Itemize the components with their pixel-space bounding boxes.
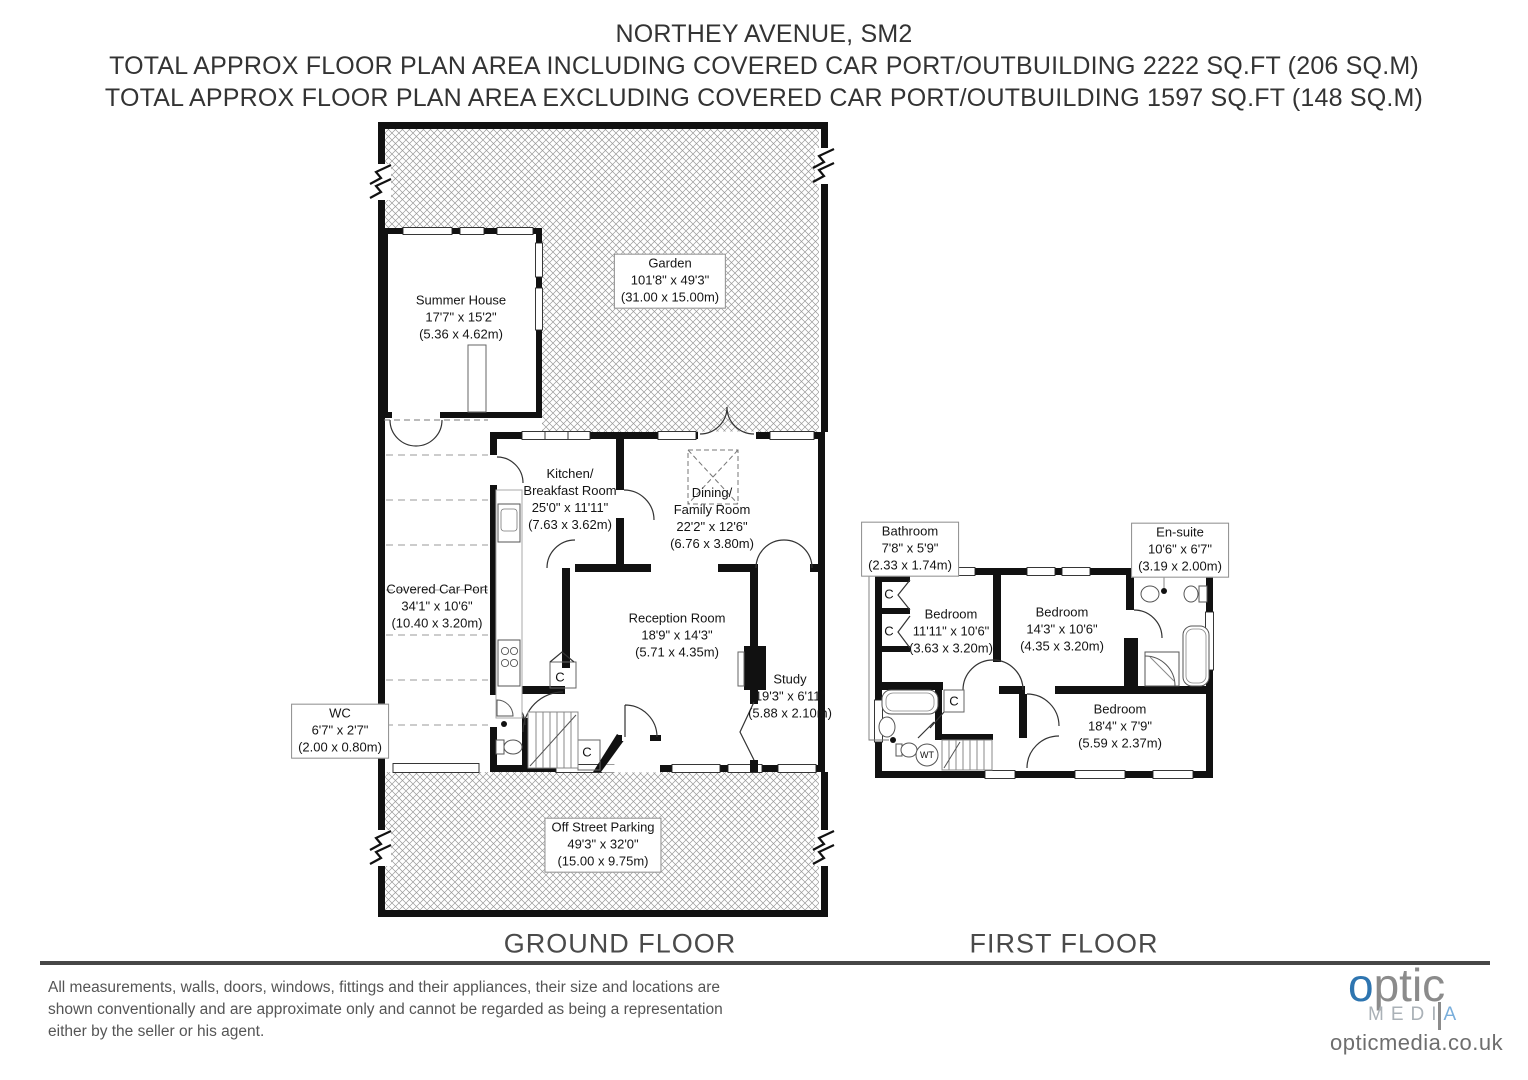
car-port-screen	[393, 764, 479, 773]
summer-house-door	[390, 420, 442, 446]
closet-symbol-ground-2: C	[582, 745, 591, 760]
kitchen-fixtures	[496, 490, 522, 718]
logo-media-line: MEDIA	[1368, 1004, 1486, 1026]
stairs-first	[942, 740, 992, 770]
first-floor-title: FIRST FLOOR	[969, 929, 1158, 960]
room-label-dining: Dining/ Family Room 22'2" x 12'6" (6.76 …	[670, 485, 754, 553]
room-label-reception: Reception Room 18'9" x 14'3" (5.71 x 4.3…	[629, 611, 726, 662]
room-label-bathroom: Bathroom 7'8" x 5'9" (2.33 x 1.74m)	[861, 522, 959, 577]
bathroom-dot	[890, 737, 896, 743]
closet-symbol-ff-3: C	[949, 694, 958, 709]
closet-symbol-ff-2: C	[884, 624, 893, 639]
front-door-gap	[622, 735, 650, 741]
room-label-kitchen: Kitchen/ Breakfast Room 25'0" x 11'11" (…	[523, 466, 616, 534]
optic-media-logo: optic MEDIA opticmedia.co.uk	[1326, 962, 1486, 1056]
logo-website: opticmedia.co.uk	[1330, 1030, 1486, 1056]
room-label-garden: Garden 101'8" x 49'3" (31.00 x 15.00m)	[614, 254, 726, 309]
closet-symbol-ff-1: C	[884, 587, 893, 602]
door-hinge-dot	[501, 721, 507, 727]
fireplace-hearth	[738, 652, 744, 686]
room-label-ensuite: En-suite 10'6" x 6'7" (3.19 x 2.00m)	[1131, 523, 1229, 578]
logo-wordmark: optic	[1348, 962, 1486, 1008]
ensuite-dot	[1161, 588, 1167, 594]
room-label-bedroom-3: Bedroom 18'4" x 7'9" (5.59 x 2.37m)	[1078, 702, 1162, 753]
room-label-bedroom-1: Bedroom 11'11" x 10'6" (3.63 x 3.20m)	[909, 607, 993, 658]
logo-descender	[1438, 1002, 1441, 1030]
room-label-wc: WC 6'7" x 2'7" (2.00 x 0.80m)	[291, 704, 389, 759]
floorplan-drawing	[0, 0, 1528, 1080]
stairs-ground	[528, 712, 578, 768]
room-label-parking: Off Street Parking 49'3" x 32'0" (15.00 …	[544, 818, 661, 873]
water-tank-symbol: WT	[920, 750, 934, 760]
closet-symbol-ground-1: C	[555, 670, 564, 685]
ground-floor-title: GROUND FLOOR	[504, 929, 737, 960]
room-label-car-port: Covered Car Port 34'1" x 10'6" (10.40 x …	[386, 582, 487, 633]
summer-house-flue	[468, 345, 486, 412]
floorplan-page: NORTHEY AVENUE, SM2 TOTAL APPROX FLOOR P…	[0, 0, 1528, 1080]
room-label-summer-house: Summer House 17'7" x 15'2" (5.36 x 4.62m…	[416, 293, 506, 344]
room-label-study: Study 19'3" x 6'11" (5.88 x 2.10m)	[748, 672, 832, 723]
room-label-bedroom-2: Bedroom 14'3" x 10'6" (4.35 x 3.20m)	[1020, 605, 1104, 656]
